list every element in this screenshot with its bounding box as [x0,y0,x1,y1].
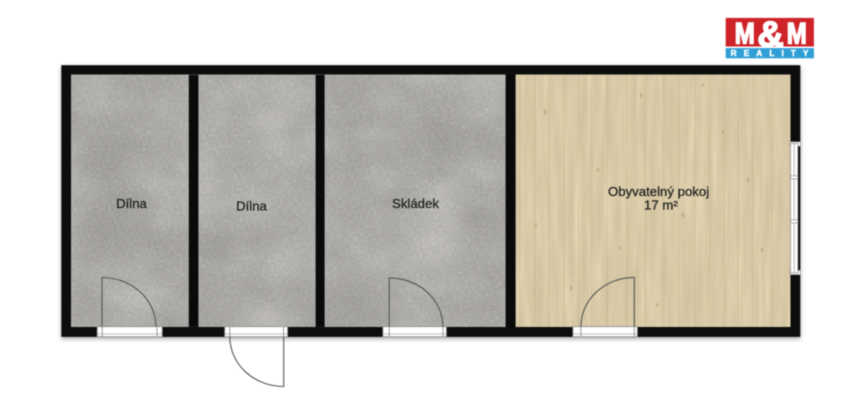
svg-text:REALITY: REALITY [731,48,816,58]
svg-text:Skládek: Skládek [392,196,439,211]
svg-text:M: M [735,17,755,50]
svg-text:Dílna: Dílna [236,199,267,214]
svg-text:17 m²: 17 m² [644,198,678,213]
svg-text:Dílna: Dílna [116,196,147,211]
svg-text:M: M [787,17,807,50]
